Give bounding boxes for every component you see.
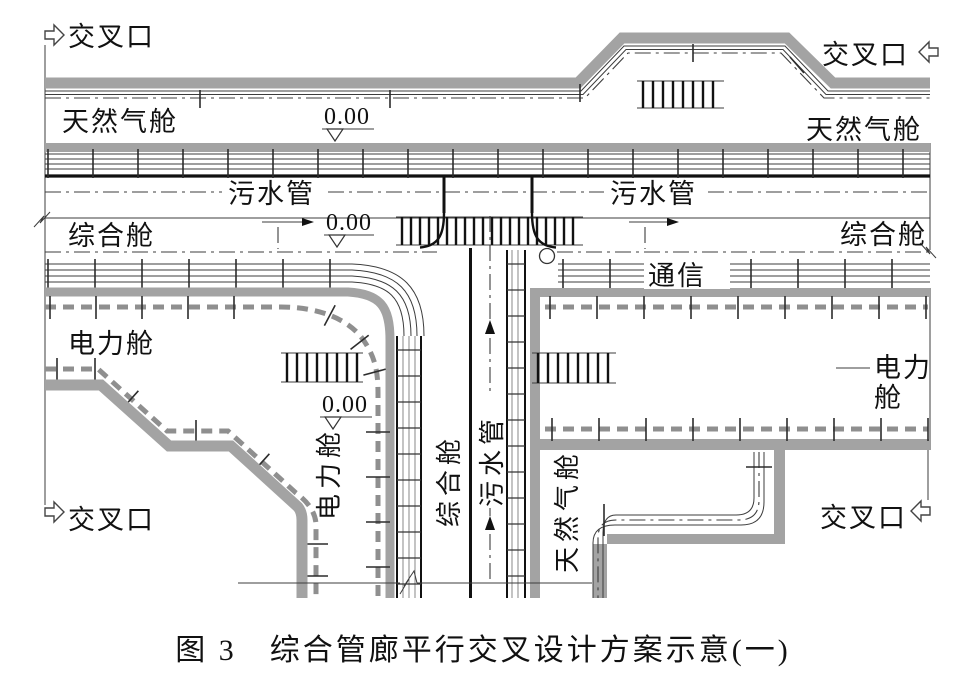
label-sewage-vertical: 污水管 bbox=[478, 414, 507, 507]
label-power-vertical: 电力舱 bbox=[315, 427, 344, 520]
elevation-mark-3: 0.00 bbox=[320, 392, 372, 429]
label-utility-vertical: 综合舱 bbox=[435, 434, 464, 527]
label-utility-left: 综合舱 bbox=[68, 221, 155, 251]
label-utility-right: 综合舱 bbox=[840, 220, 927, 250]
branch-west-ladder bbox=[397, 336, 421, 598]
elevation-mark-2: 0.00 bbox=[324, 210, 374, 247]
text-labels: 交叉口 交叉口 交叉口 交叉口 天然气舱 天然气舱 污水管 污水管 综合舱 综合… bbox=[62, 22, 932, 573]
figure: 0.00 0.00 0.00 交叉口 交叉口 交叉口 交叉口 天然气舱 天然气舱… bbox=[0, 0, 967, 678]
manhole-circle bbox=[540, 249, 555, 264]
label-sewage-right: 污水管 bbox=[610, 179, 697, 209]
label-gas-right: 天然气舱 bbox=[806, 115, 922, 145]
power-box-right bbox=[530, 288, 930, 598]
comm-rack-right bbox=[558, 259, 930, 289]
intersection-arrow-top-left bbox=[45, 25, 64, 45]
gas-compartment-band bbox=[45, 38, 930, 108]
label-intersection-bottom-right: 交叉口 bbox=[820, 503, 907, 533]
elevation-value: 0.00 bbox=[324, 104, 370, 130]
intersection-arrow-bottom-left bbox=[45, 502, 64, 522]
label-gas-left: 天然气舱 bbox=[62, 107, 178, 137]
branch-east-ladder bbox=[507, 250, 525, 598]
flow-arrow-left bbox=[262, 218, 314, 249]
utility-corridor-row bbox=[45, 218, 930, 252]
label-power-right-line1: 电力 bbox=[874, 353, 932, 383]
branch-corridor bbox=[397, 216, 525, 598]
elevation-value: 0.00 bbox=[326, 210, 372, 236]
gas-pipe-elbow bbox=[593, 452, 772, 598]
label-power-left: 电力舱 bbox=[68, 329, 155, 359]
vent-grate-top bbox=[637, 81, 724, 108]
label-intersection-top-left: 交叉口 bbox=[68, 22, 155, 52]
label-sewage-left: 污水管 bbox=[228, 179, 315, 209]
vent-grate-right bbox=[532, 353, 616, 383]
break-symbols bbox=[34, 212, 936, 258]
figure-caption: 图 3 综合管廊平行交叉设计方案示意(一) bbox=[175, 634, 790, 667]
label-power-right-line2: 舱 bbox=[874, 383, 903, 413]
vent-grate-left bbox=[281, 353, 363, 382]
utility-tunnel-plan-drawing: 0.00 0.00 0.00 交叉口 交叉口 交叉口 交叉口 天然气舱 天然气舱… bbox=[0, 0, 967, 678]
intersection-arrow-top-right bbox=[919, 42, 938, 62]
label-gas-vertical: 天然气舱 bbox=[553, 449, 582, 573]
label-intersection-top-right: 交叉口 bbox=[822, 40, 909, 70]
elevation-value: 0.00 bbox=[322, 392, 368, 418]
label-communication: 通信 bbox=[648, 261, 706, 291]
intersection-arrow-bottom-right bbox=[911, 501, 930, 521]
elevation-mark-1: 0.00 bbox=[322, 104, 374, 141]
sewage-band bbox=[45, 143, 930, 218]
flow-arrow-right bbox=[629, 218, 679, 249]
label-intersection-bottom-left: 交叉口 bbox=[68, 505, 155, 535]
